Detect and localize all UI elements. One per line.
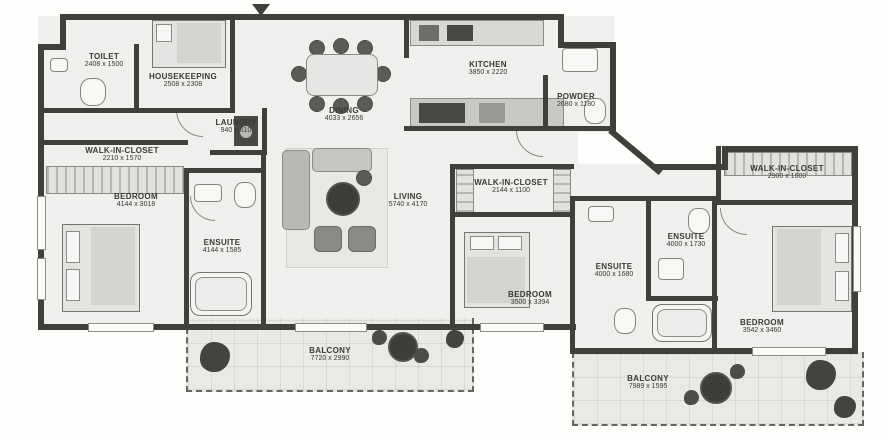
room-dims: 4000 x 1680 bbox=[572, 271, 656, 279]
window-left-1 bbox=[37, 196, 46, 250]
room-dims: 4144 x 1585 bbox=[180, 247, 264, 255]
room-name: BEDROOM bbox=[92, 192, 180, 201]
living-armchair bbox=[348, 226, 376, 252]
pillow bbox=[835, 271, 849, 301]
balcony-right-table bbox=[700, 372, 732, 404]
living-coffee-table bbox=[326, 182, 360, 216]
wall-ensuite-right-bottom bbox=[646, 296, 718, 301]
room-name: BALCONY bbox=[604, 374, 692, 383]
room-label-toilet: TOILET 2408 x 1500 bbox=[64, 52, 144, 69]
room-dims: 940 x 610 bbox=[204, 127, 268, 135]
wardrobe-closet-left bbox=[46, 166, 184, 194]
room-name: BALCONY bbox=[286, 346, 374, 355]
balcony-left-chair bbox=[372, 330, 387, 345]
room-name: BEDROOM bbox=[486, 290, 574, 299]
living-sofa bbox=[312, 148, 372, 172]
pillow bbox=[156, 24, 172, 42]
room-name: DINING bbox=[302, 106, 386, 115]
bathtub-left bbox=[190, 272, 252, 316]
wall-housekeeping-bottom bbox=[134, 108, 235, 113]
room-label-balcony-left: BALCONY 7720 x 2990 bbox=[286, 346, 374, 363]
room-dims: 2508 x 2308 bbox=[128, 81, 238, 89]
window-bedroom-mid bbox=[480, 323, 544, 332]
wall-left-step-vert bbox=[60, 14, 66, 50]
room-label-bedroom-mid: BEDROOM 3500 x 3394 bbox=[486, 290, 574, 307]
toilet-wc bbox=[80, 78, 106, 106]
room-dims: 2144 x 1100 bbox=[450, 187, 572, 195]
room-name: ENSUITE bbox=[180, 238, 264, 247]
room-dims: 2210 x 1570 bbox=[52, 155, 192, 163]
room-label-walk-in-closet-right: WALK-IN-CLOSET 2900 x 1600 bbox=[716, 164, 858, 181]
living-chaise bbox=[282, 150, 310, 230]
wall-ensuite-left-top bbox=[184, 168, 266, 173]
room-dims: 5740 x 4170 bbox=[366, 201, 450, 209]
wall-powder-right bbox=[610, 42, 616, 132]
wall-closet-left-top bbox=[38, 140, 188, 145]
wall-wing-top-b bbox=[722, 146, 858, 152]
room-name: ENSUITE bbox=[572, 262, 656, 271]
ensuite-right-wc bbox=[688, 208, 710, 234]
window-bedroom-left bbox=[88, 323, 154, 332]
powder-vanity bbox=[562, 48, 598, 72]
floor-plan: TOILET 2408 x 1500 HOUSEKEEPING 2508 x 2… bbox=[0, 0, 890, 440]
room-name: WALK-IN-CLOSET bbox=[52, 146, 192, 155]
bed-right bbox=[772, 226, 852, 312]
room-dims: 2408 x 1500 bbox=[64, 61, 144, 69]
room-label-walk-in-closet-mid: WALK-IN-CLOSET 2144 x 1100 bbox=[450, 178, 572, 195]
room-label-ensuite-right: ENSUITE 4000 x 1730 bbox=[642, 232, 730, 249]
room-label-ensuite-left: ENSUITE 4144 x 1585 bbox=[180, 238, 264, 255]
room-label-kitchen: KITCHEN 3850 x 2220 bbox=[444, 60, 532, 77]
blanket bbox=[91, 227, 135, 305]
room-dims: 3542 x 3460 bbox=[716, 327, 808, 335]
kitchen-stove bbox=[419, 103, 465, 123]
wall-ensuites-top bbox=[570, 196, 718, 201]
kitchen-sink bbox=[479, 103, 505, 123]
entry-marker-icon bbox=[252, 4, 270, 16]
dining-table bbox=[306, 54, 378, 96]
room-name: WALK-IN-CLOSET bbox=[450, 178, 572, 187]
wall-housekeeping-right bbox=[230, 14, 235, 112]
blanket bbox=[777, 229, 821, 305]
room-label-bedroom-right: BEDROOM 3542 x 3460 bbox=[716, 318, 808, 335]
room-label-bedroom-left: BEDROOM 4144 x 3018 bbox=[92, 192, 180, 209]
room-label-laundry: LAUNDRY 940 x 610 bbox=[204, 118, 268, 135]
room-dims: 7989 x 1595 bbox=[604, 383, 692, 391]
dining-chair bbox=[333, 38, 349, 54]
window-right-wall bbox=[853, 226, 861, 292]
room-label-balcony-right: BALCONY 7989 x 1595 bbox=[604, 374, 692, 391]
wall-top bbox=[60, 14, 562, 20]
wall-closet-mid-top bbox=[450, 164, 574, 169]
room-dims: 7720 x 2990 bbox=[286, 355, 374, 363]
pillow bbox=[66, 231, 80, 263]
pillow bbox=[835, 233, 849, 263]
bed-left bbox=[62, 224, 140, 312]
bathtub-inner bbox=[657, 309, 707, 337]
room-label-dining: DINING 4033 x 2656 bbox=[302, 106, 386, 123]
pillow bbox=[66, 269, 80, 301]
kitchen-counter-top bbox=[410, 20, 544, 46]
room-dims: 2900 x 1600 bbox=[716, 173, 858, 181]
room-label-walk-in-closet-left: WALK-IN-CLOSET 2210 x 1570 bbox=[52, 146, 192, 163]
room-name: HOUSEKEEPING bbox=[128, 72, 238, 81]
pillow bbox=[470, 236, 494, 250]
room-dims: 4000 x 1730 bbox=[642, 241, 730, 249]
balcony-right-chair bbox=[684, 390, 699, 405]
room-dims: 4144 x 3018 bbox=[92, 201, 180, 209]
room-label-ensuite-mid: ENSUITE 4000 x 1680 bbox=[572, 262, 656, 279]
wall-powder-top bbox=[558, 42, 616, 48]
window-left-2 bbox=[37, 258, 46, 300]
living-side-table bbox=[356, 170, 372, 186]
pillow bbox=[498, 236, 522, 250]
wall-kitchen-left bbox=[404, 14, 409, 58]
room-name: POWDER bbox=[540, 92, 612, 101]
ensuite-mid-basin bbox=[588, 206, 614, 222]
room-dims: 2680 x 1180 bbox=[540, 101, 612, 109]
wall-closet-right-bottom bbox=[716, 200, 858, 205]
ensuite-right-basin bbox=[658, 258, 684, 280]
bathtub-inner bbox=[195, 277, 247, 311]
balcony-left-chair bbox=[414, 348, 429, 363]
wall-kitchen-bottom bbox=[404, 126, 614, 131]
ensuite-mid-wc bbox=[614, 308, 636, 334]
room-label-living: LIVING 5740 x 4170 bbox=[366, 192, 450, 209]
kitchen-appliance bbox=[419, 25, 439, 41]
room-name: TOILET bbox=[64, 52, 144, 61]
dining-chair bbox=[291, 66, 307, 82]
wall-laundry-bottom bbox=[210, 150, 267, 155]
wall-toilet-bottom bbox=[38, 108, 139, 113]
window-living-balcony bbox=[295, 323, 367, 332]
room-name: LAUNDRY bbox=[204, 118, 268, 127]
wall-closet-mid-bottom bbox=[450, 212, 574, 217]
room-name: WALK-IN-CLOSET bbox=[716, 164, 858, 173]
window-bedroom-right bbox=[752, 347, 826, 356]
room-label-powder: POWDER 2680 x 1180 bbox=[540, 92, 612, 109]
room-dims: 4033 x 2656 bbox=[302, 115, 386, 123]
ensuite-left-wc bbox=[234, 182, 256, 208]
room-name: BEDROOM bbox=[716, 318, 808, 327]
blanket bbox=[177, 23, 221, 63]
room-dims: 3500 x 3394 bbox=[486, 299, 574, 307]
room-label-housekeeping: HOUSEKEEPING 2508 x 2308 bbox=[128, 72, 238, 89]
bathtub-right bbox=[652, 304, 712, 342]
balcony-right-chair bbox=[730, 364, 745, 379]
kitchen-appliance bbox=[447, 25, 473, 41]
room-name: KITCHEN bbox=[444, 60, 532, 69]
housekeeping-bed bbox=[152, 20, 226, 68]
ensuite-left-basin bbox=[194, 184, 222, 202]
room-name: ENSUITE bbox=[642, 232, 730, 241]
living-armchair bbox=[314, 226, 342, 252]
room-dims: 3850 x 2220 bbox=[444, 69, 532, 77]
room-name: LIVING bbox=[366, 192, 450, 201]
